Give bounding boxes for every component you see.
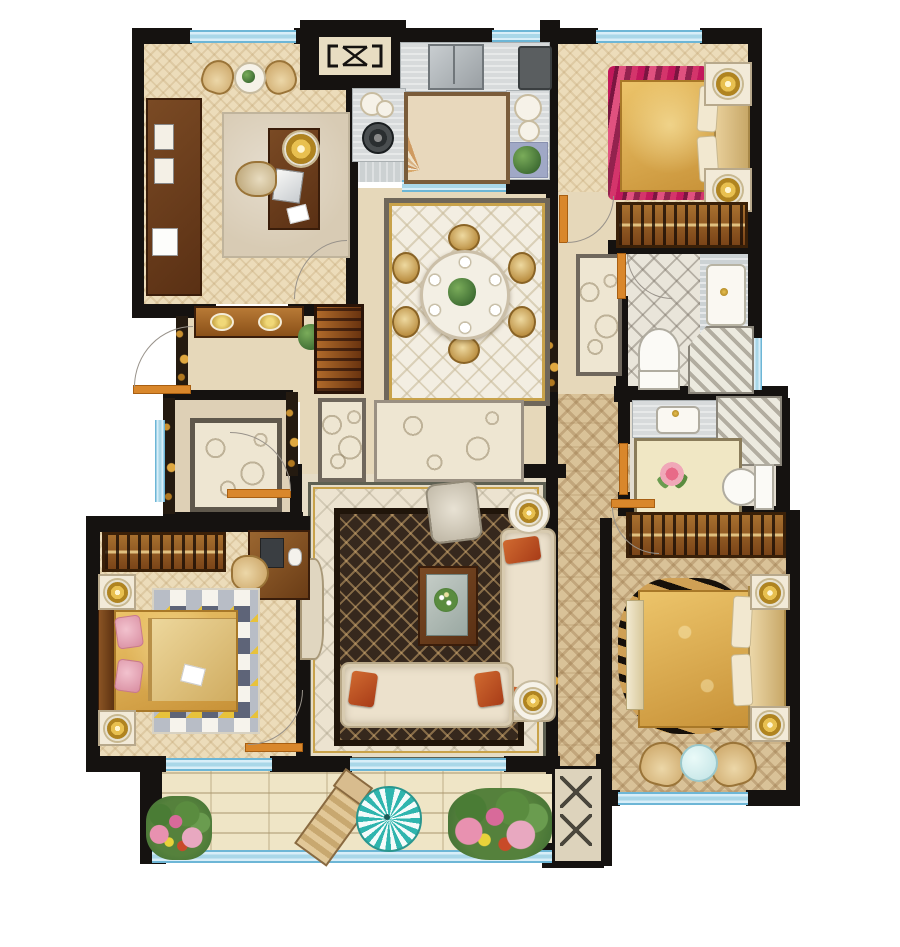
hall-runner-rug — [576, 254, 622, 376]
shoe-cabinet — [314, 304, 364, 394]
coffee-table-flowers — [434, 588, 458, 612]
dining-chair — [392, 306, 420, 338]
guest-toilet-tank — [638, 370, 680, 390]
bedroom2-lamp — [714, 176, 742, 204]
elevator-icon — [325, 43, 385, 69]
bedroom3-door — [246, 744, 302, 751]
guest-bath-tap — [720, 288, 728, 296]
marble-wall-accent — [286, 392, 298, 476]
master-door — [612, 500, 654, 507]
refrigerator — [518, 46, 552, 90]
cooktop — [362, 122, 394, 154]
master-bath-tap — [672, 410, 679, 417]
tea-table-plant — [242, 70, 255, 83]
bookshelf-frame — [152, 228, 178, 256]
side-table-lamp — [521, 689, 545, 713]
wall — [786, 510, 800, 804]
master-window — [618, 792, 748, 805]
wall — [746, 790, 800, 806]
side-table-lamp — [517, 501, 541, 525]
bedroom2-wardrobe — [616, 202, 748, 248]
dish — [376, 100, 394, 118]
console-lamp — [210, 313, 234, 331]
bedroom3-desk-chair — [231, 555, 269, 591]
corridor-floor-lower — [556, 520, 602, 770]
dining-chair — [508, 252, 536, 284]
guest-bath-door — [618, 254, 625, 298]
kitchen-plant — [513, 146, 541, 174]
platform-x-mark — [560, 814, 592, 846]
elevator-box — [316, 34, 394, 78]
master-toilet-tank — [754, 464, 774, 510]
hall-center-rug — [374, 400, 524, 482]
bedroom3-lamp — [105, 580, 130, 605]
bedroom3-pink-pillow — [114, 614, 144, 649]
bedroom3-window — [166, 758, 272, 771]
plate — [514, 94, 542, 122]
bedroom3-mouse — [288, 548, 302, 566]
bookshelf-frame — [154, 124, 174, 150]
bedroom2-window — [596, 30, 702, 43]
entry-door — [134, 386, 190, 393]
wall — [132, 28, 144, 318]
study-desk-chair — [235, 161, 277, 197]
sink-divider — [453, 46, 455, 84]
multipurpose-door — [228, 490, 290, 497]
bedroom2-door — [560, 196, 567, 242]
wall — [556, 28, 598, 44]
plate — [518, 120, 540, 142]
sofa-pillow — [503, 536, 542, 565]
guest-shower — [688, 326, 754, 394]
sofa-pillow — [348, 670, 378, 707]
bedroom3-lamp — [105, 716, 130, 741]
bedroom2-lamp — [714, 70, 742, 98]
wall — [506, 178, 558, 194]
dining-chair — [448, 336, 480, 364]
bedroom3-duvet — [148, 618, 236, 701]
sofa-pillow — [474, 670, 504, 707]
wall — [600, 518, 612, 792]
platform-x-mark — [560, 776, 592, 808]
balcony-flowers-left — [146, 796, 212, 860]
kitchen-double-sink — [428, 44, 484, 90]
bedroom3-wardrobe — [102, 532, 226, 572]
kitchen-top-window — [492, 30, 540, 42]
entry-door-arc — [134, 326, 193, 387]
parasol-pole — [384, 814, 390, 820]
wall — [748, 254, 762, 338]
master-bath-door — [620, 444, 627, 494]
floral-motif — [656, 458, 688, 490]
balcony-flowers-right — [448, 788, 552, 860]
wall — [618, 394, 630, 444]
wall — [163, 512, 303, 524]
dining-chair — [392, 252, 420, 284]
dining-centerpiece — [448, 278, 476, 306]
living-armchair — [425, 479, 484, 545]
dining-chair — [508, 306, 536, 338]
living-balcony-slider — [350, 758, 506, 771]
master-lamp — [757, 580, 783, 606]
bedroom3-pink-pillow — [114, 658, 144, 693]
master-tea-table — [680, 744, 718, 782]
kitchen-fan-tile-mat — [404, 92, 510, 184]
master-bed-bench — [626, 600, 644, 710]
guest-toilet — [638, 328, 680, 376]
master-pillow — [731, 654, 754, 707]
master-lamp — [757, 712, 783, 738]
hall-nook-rug — [318, 398, 366, 482]
bookshelf-frame — [154, 158, 174, 184]
console-lamp — [258, 313, 282, 331]
wall — [270, 756, 352, 772]
study-window — [190, 30, 296, 43]
floor-plan — [0, 0, 900, 947]
dining-chair — [448, 224, 480, 252]
multipurpose-window — [155, 420, 165, 502]
desk-lamp — [284, 132, 318, 166]
